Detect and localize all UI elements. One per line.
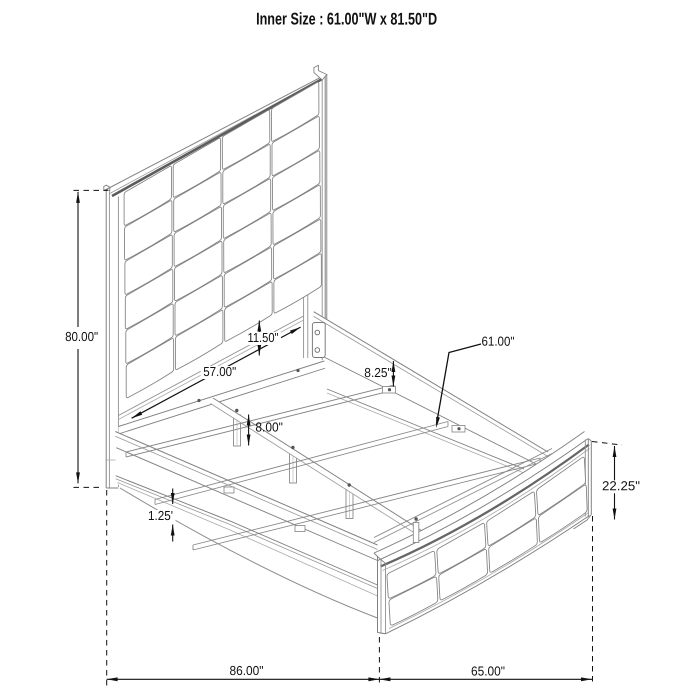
svg-text:8.25": 8.25" xyxy=(364,365,392,380)
svg-text:8.00": 8.00" xyxy=(255,420,283,435)
svg-text:57.00": 57.00" xyxy=(203,364,236,379)
svg-text:86.00": 86.00" xyxy=(229,663,263,678)
svg-text:80.00": 80.00" xyxy=(65,329,98,344)
svg-text:11.50": 11.50" xyxy=(247,330,278,345)
svg-text:65.00": 65.00" xyxy=(471,663,505,678)
svg-text:22.25": 22.25" xyxy=(602,478,640,493)
svg-text:Inner Size : 61.00"W x 81.50"D: Inner Size : 61.00"W x 81.50"D xyxy=(256,10,437,29)
svg-text:61.00": 61.00" xyxy=(481,334,514,349)
svg-text:1.25': 1.25' xyxy=(148,508,173,523)
